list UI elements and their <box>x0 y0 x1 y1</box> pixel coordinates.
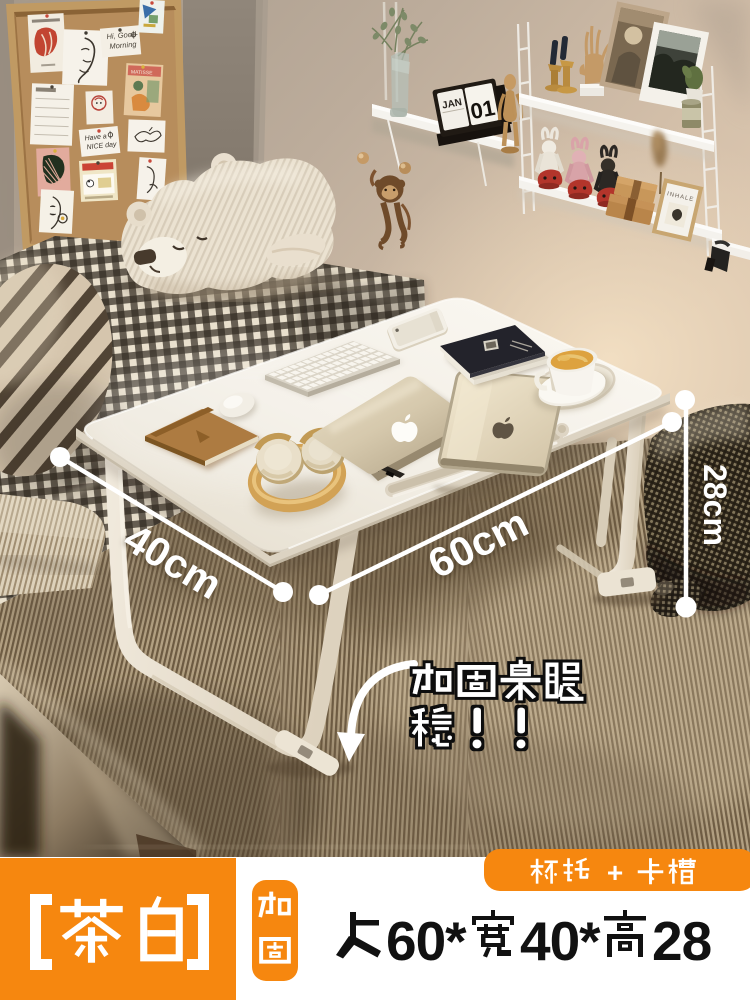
svg-text:40*: 40* <box>520 910 601 972</box>
svg-text:60*: 60* <box>386 910 467 972</box>
svg-text:28: 28 <box>652 910 711 972</box>
svg-text:MATISSE: MATISSE <box>131 69 154 76</box>
svg-text:+: + <box>607 857 623 888</box>
svg-text:28cm: 28cm <box>697 464 733 546</box>
svg-text:01: 01 <box>468 95 497 124</box>
